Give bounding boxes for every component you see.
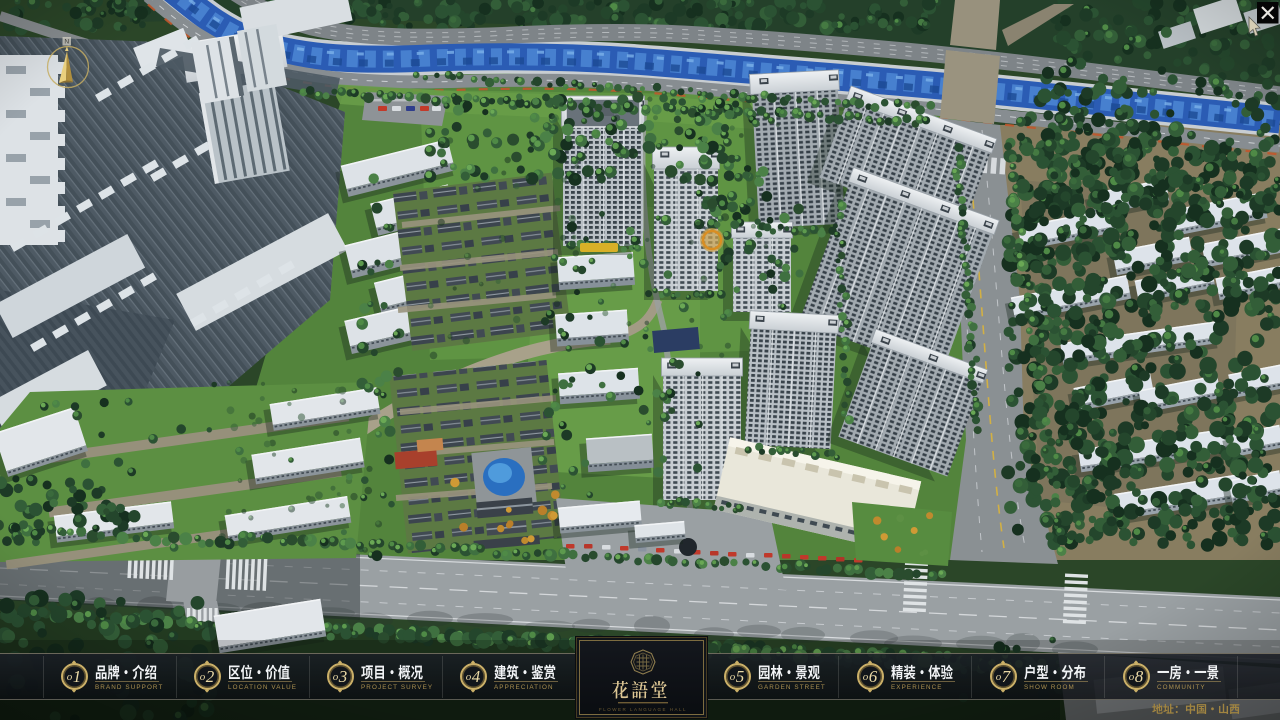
svg-text:N: N (64, 39, 69, 46)
svg-text:FLOWER LANGUAGE HALL: FLOWER LANGUAGE HALL (599, 707, 687, 712)
